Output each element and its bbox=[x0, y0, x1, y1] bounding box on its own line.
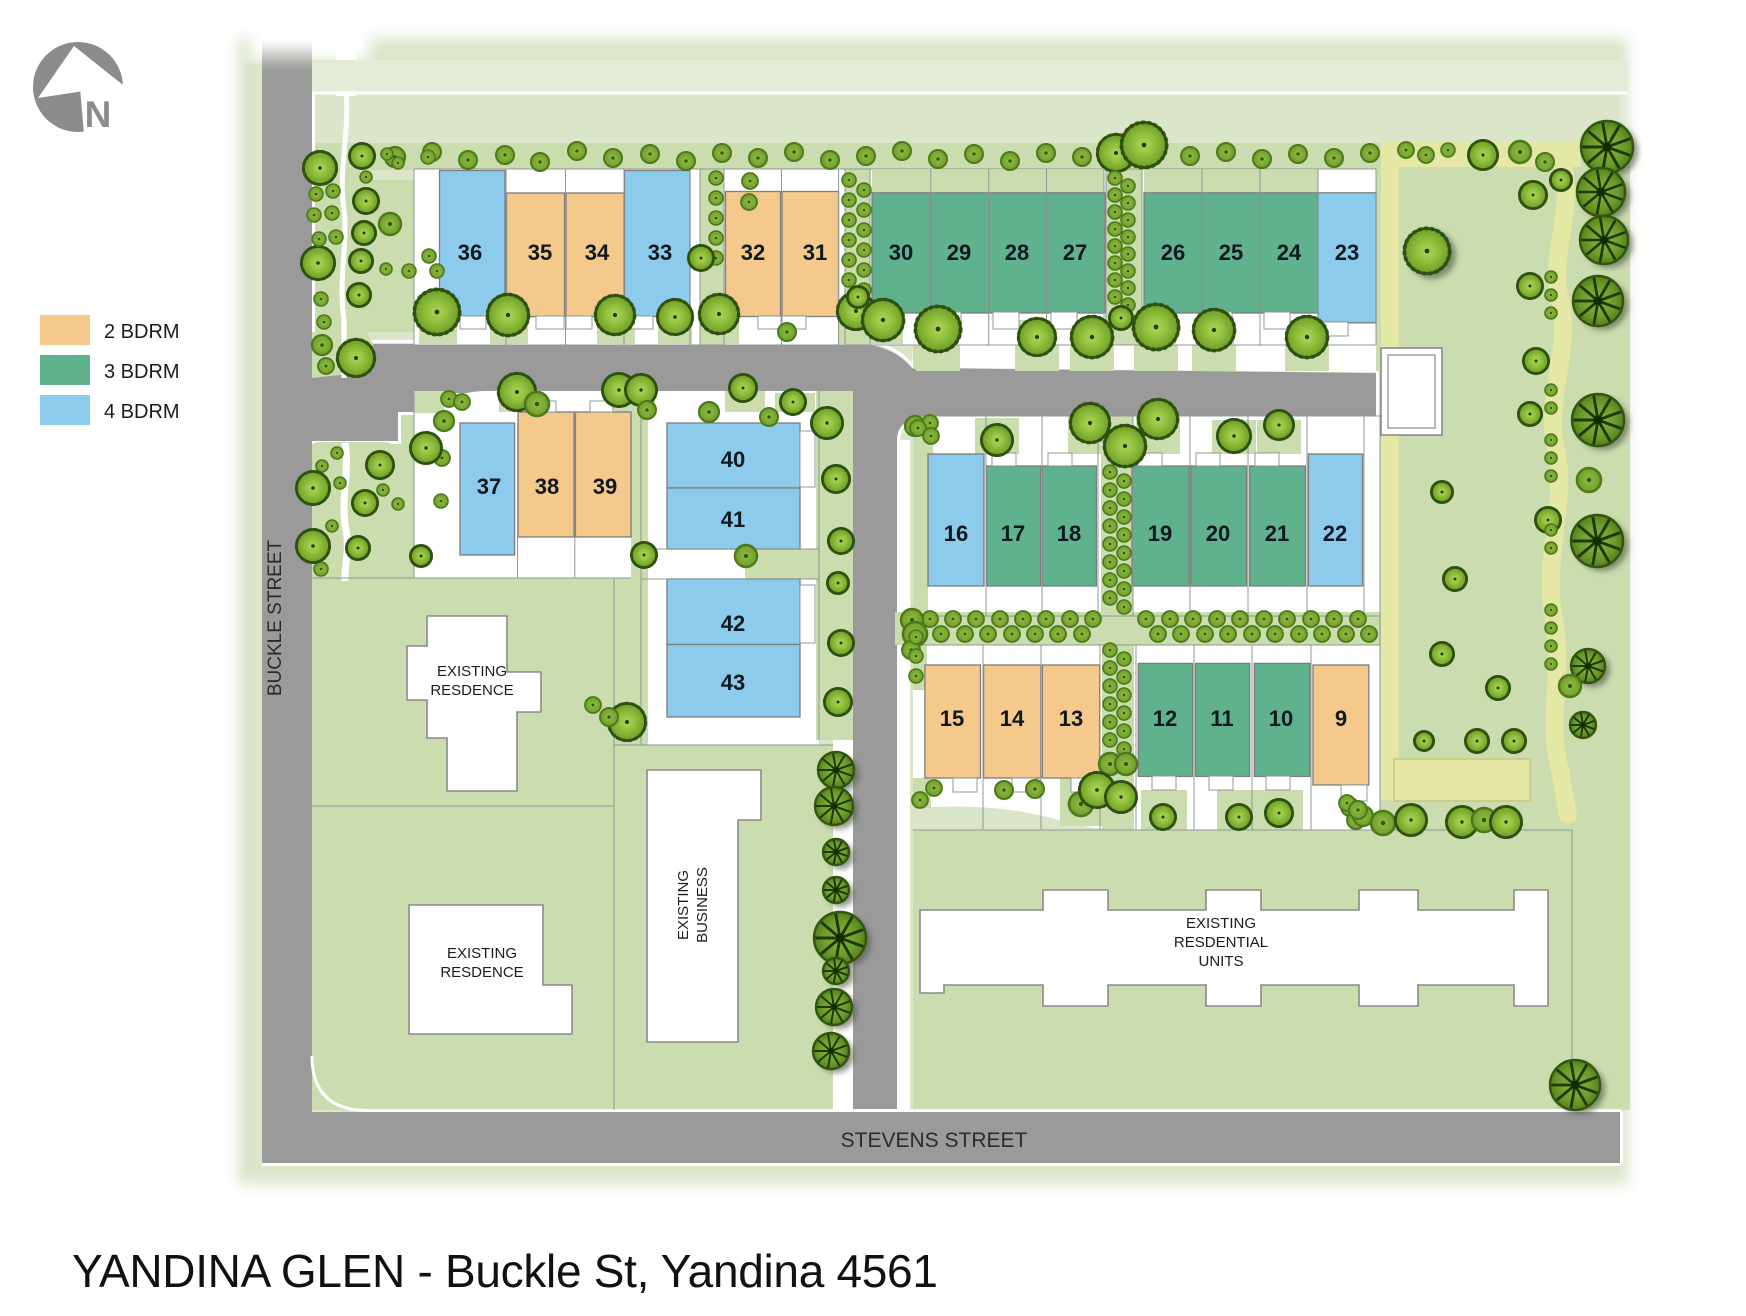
svg-text:36: 36 bbox=[458, 240, 482, 265]
svg-text:4 BDRM: 4 BDRM bbox=[104, 401, 180, 423]
svg-text:18: 18 bbox=[1057, 521, 1081, 546]
svg-text:10: 10 bbox=[1269, 706, 1293, 731]
svg-text:17: 17 bbox=[1001, 521, 1025, 546]
svg-text:30: 30 bbox=[889, 240, 913, 265]
svg-text:29: 29 bbox=[947, 240, 971, 265]
svg-text:40: 40 bbox=[721, 447, 745, 472]
svg-text:BUCKLE STREET: BUCKLE STREET bbox=[265, 539, 286, 696]
svg-text:2 BDRM: 2 BDRM bbox=[104, 321, 180, 343]
svg-text:26: 26 bbox=[1161, 240, 1185, 265]
svg-text:15: 15 bbox=[940, 706, 964, 731]
svg-text:19: 19 bbox=[1148, 521, 1172, 546]
svg-text:43: 43 bbox=[721, 670, 745, 695]
svg-text:N: N bbox=[85, 94, 112, 135]
svg-text:STEVENS STREET: STEVENS STREET bbox=[841, 1129, 1028, 1152]
svg-text:14: 14 bbox=[1000, 706, 1025, 731]
svg-text:3 BDRM: 3 BDRM bbox=[104, 361, 180, 383]
svg-text:25: 25 bbox=[1219, 240, 1243, 265]
svg-text:22: 22 bbox=[1323, 521, 1347, 546]
svg-text:16: 16 bbox=[944, 521, 968, 546]
svg-text:24: 24 bbox=[1277, 240, 1302, 265]
svg-text:12: 12 bbox=[1153, 706, 1177, 731]
svg-text:33: 33 bbox=[648, 240, 672, 265]
svg-text:28: 28 bbox=[1005, 240, 1029, 265]
svg-text:32: 32 bbox=[741, 240, 765, 265]
svg-text:34: 34 bbox=[585, 240, 610, 265]
svg-text:37: 37 bbox=[477, 474, 501, 499]
svg-text:13: 13 bbox=[1059, 706, 1083, 731]
svg-text:23: 23 bbox=[1335, 240, 1359, 265]
svg-text:27: 27 bbox=[1063, 240, 1087, 265]
svg-text:11: 11 bbox=[1210, 706, 1233, 731]
svg-text:41: 41 bbox=[721, 507, 745, 532]
svg-text:31: 31 bbox=[803, 240, 827, 265]
svg-text:38: 38 bbox=[535, 474, 559, 499]
svg-text:42: 42 bbox=[721, 611, 745, 636]
svg-text:35: 35 bbox=[528, 240, 552, 265]
svg-text:YANDINA GLEN - Buckle St, Yand: YANDINA GLEN - Buckle St, Yandina 4561 bbox=[72, 1245, 938, 1297]
svg-text:9: 9 bbox=[1335, 706, 1347, 731]
svg-text:20: 20 bbox=[1206, 521, 1230, 546]
svg-text:21: 21 bbox=[1265, 521, 1289, 546]
svg-text:39: 39 bbox=[593, 474, 617, 499]
